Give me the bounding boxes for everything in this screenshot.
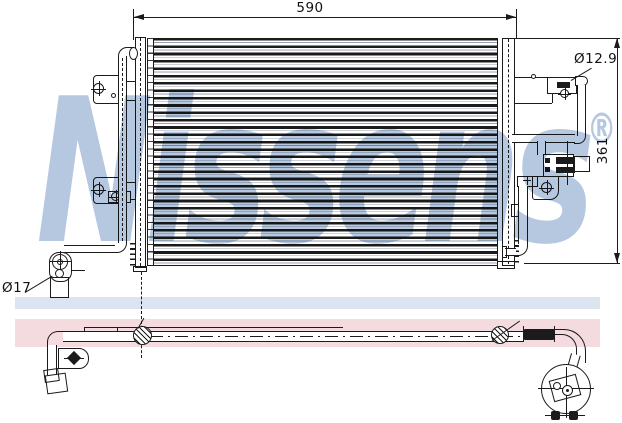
dim-17-label: Ø17 — [2, 280, 31, 296]
dim-590-arrow-left — [134, 14, 144, 20]
valve-mark-left1 — [545, 158, 550, 163]
sideview-second-pipe-line — [85, 327, 343, 328]
dim-361-arrow-top — [614, 38, 620, 48]
outlet-fitting-stub — [71, 270, 85, 271]
left-tank-centerline — [140, 38, 141, 266]
core-bottom-line — [147, 265, 498, 267]
valve-bolt-upper — [556, 157, 575, 164]
inlet-bracket-arm-rise — [552, 93, 553, 103]
condenser-core-fins — [147, 38, 498, 266]
right-tank-foot — [497, 261, 515, 269]
bracket-arm-bl-1 — [125, 182, 136, 183]
sideview-pipe-centerline — [150, 336, 542, 337]
sideview-block-cap-left — [523, 326, 524, 342]
bracket-arm-tl-1 — [125, 81, 136, 82]
condenser-technical-drawing: 590 361 Ø17 — [0, 0, 622, 423]
valve-side-box — [574, 156, 590, 172]
left-tank-end-ticks — [130, 243, 135, 268]
sideview-left-connector — [45, 373, 68, 395]
valve-mark-left2 — [545, 167, 550, 172]
inlet-bracket-hole — [531, 74, 536, 79]
sideview-bracket-bolt-bar — [64, 358, 84, 359]
dim-590-ext-right — [516, 9, 517, 38]
valve-bracket-screw — [541, 182, 552, 193]
alignment-centerline — [141, 272, 142, 358]
bracket-pin-top-left — [111, 93, 116, 98]
core-left-header — [147, 38, 154, 266]
dim-590-line — [133, 17, 517, 18]
dim-361-line — [617, 38, 618, 263]
valve-bolt-lower — [556, 167, 575, 174]
valve-stem-line — [567, 141, 568, 185]
liquid-pipe-flange — [502, 246, 507, 258]
inlet-fitting-bolt — [557, 82, 570, 88]
inlet-bracket-arm-bottom — [514, 103, 552, 104]
right-pipe-elbow — [574, 134, 586, 144]
drier-sight-glass-small — [553, 382, 561, 390]
sideview-center-flange — [133, 326, 152, 345]
highlight-band-blue — [15, 297, 600, 309]
tank-joint-plus-v — [527, 177, 528, 185]
right-tank-centerline — [508, 39, 509, 264]
liquid-pipe-vertical — [518, 186, 528, 244]
inlet-pipe-vertical — [577, 85, 586, 136]
left-pipe-tank-flange — [129, 47, 138, 60]
liquid-pipe-elbow — [514, 242, 528, 256]
sideview-pipe-clamp — [84, 327, 118, 333]
bracket-screw-top-left — [93, 83, 104, 94]
bracket-screw-bottom-left — [93, 184, 104, 195]
left-tank-foot — [133, 266, 147, 272]
dim-361-label: 361 — [595, 137, 611, 164]
drier-sight-glass-dot — [566, 389, 569, 392]
sideview-valve-block — [524, 329, 554, 340]
dim-590-arrow-right — [506, 14, 516, 20]
inlet-fitting-screw — [560, 89, 569, 98]
core-right-edge — [497, 38, 498, 266]
dim-590-label: 590 — [280, 0, 340, 16]
dim-361-arrow-bottom — [614, 253, 620, 263]
left-pipe-horizontal — [64, 245, 115, 254]
left-pipe-centerline — [122, 58, 123, 241]
outlet-fitting-block — [50, 277, 69, 298]
bracket-arm-tl-2 — [125, 100, 136, 101]
drier-foot-bar — [545, 415, 585, 416]
left-pipe-bottom-elbow — [113, 240, 127, 253]
dim-361-ext-top — [515, 38, 620, 39]
dim-129-label: Ø12.9 — [574, 51, 617, 67]
dim-361-ext-bottom — [524, 263, 620, 264]
